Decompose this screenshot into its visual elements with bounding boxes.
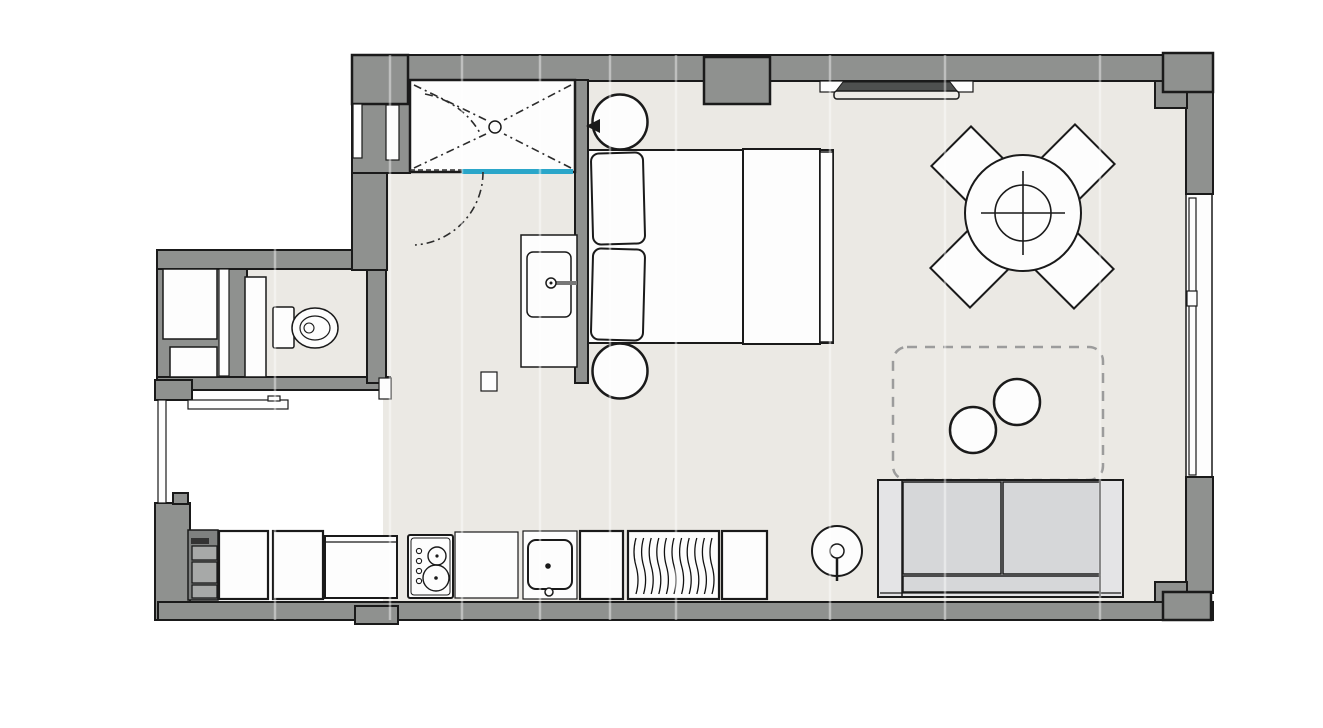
counter-section (325, 536, 397, 598)
nightstand-bottom (593, 344, 648, 399)
duct-shaft-box-2 (170, 347, 217, 377)
column-bed (704, 57, 770, 104)
vanity-sink (521, 235, 577, 367)
ac-louver-bar (834, 91, 959, 99)
window-right (1186, 194, 1212, 477)
wall-cap-left (173, 493, 188, 504)
pillow-bottom (591, 248, 645, 340)
duct-shaft-strip (219, 269, 229, 376)
kitchen-sink (523, 531, 577, 599)
counter-empty (455, 532, 518, 598)
wall-bottom-bump (355, 606, 398, 624)
window-mullion (1187, 291, 1197, 306)
shower-drain-icon (489, 121, 501, 133)
floor-plan-canvas (0, 0, 1323, 728)
nightstand-top (593, 95, 648, 150)
window-sash-lower (1189, 305, 1196, 475)
pillow-top (591, 152, 645, 244)
base-cabinet-4 (722, 531, 767, 599)
wall-niche-a (353, 104, 362, 158)
window-sash-upper (1189, 198, 1196, 294)
side-table-2 (994, 379, 1040, 425)
duct-shaft-box-1 (163, 269, 217, 339)
side-table-1 (950, 407, 996, 453)
door-jamb-2 (481, 372, 497, 391)
base-cabinet-3 (580, 531, 623, 599)
wall-opening-left (158, 400, 166, 503)
sofa-cushion-right (1003, 482, 1100, 574)
sofa (878, 480, 1123, 597)
wall-bath-left-lower (352, 173, 387, 270)
ac-body (836, 82, 957, 91)
wall-right-upper (1186, 81, 1213, 194)
shelf-dark-bar (191, 538, 209, 544)
wall-niche-b (386, 105, 399, 160)
sink-faucet-icon (545, 588, 553, 596)
column-bottom-right (1163, 592, 1211, 620)
column-top-left (352, 55, 408, 104)
radiator (628, 531, 719, 599)
wall-top (352, 55, 1213, 81)
duvet-throw (743, 149, 820, 344)
base-cabinet-1 (219, 531, 268, 599)
wc-door-leaf (245, 277, 266, 377)
base-cabinet-2 (273, 531, 323, 599)
floor-plan-page (0, 0, 1323, 728)
sofa-cushion-left (903, 482, 1001, 574)
wall-step-left (155, 380, 192, 400)
toilet (273, 307, 338, 348)
column-top-right (1163, 53, 1213, 92)
wall-wc-right (367, 268, 386, 383)
cooktop (408, 535, 453, 598)
wall-bottom (158, 602, 1213, 620)
drain-dot-icon (545, 563, 551, 569)
ac-unit (820, 81, 973, 99)
wall-right-lower (1186, 477, 1213, 593)
shelf-unit (188, 530, 218, 600)
sofa-back (903, 576, 1100, 592)
